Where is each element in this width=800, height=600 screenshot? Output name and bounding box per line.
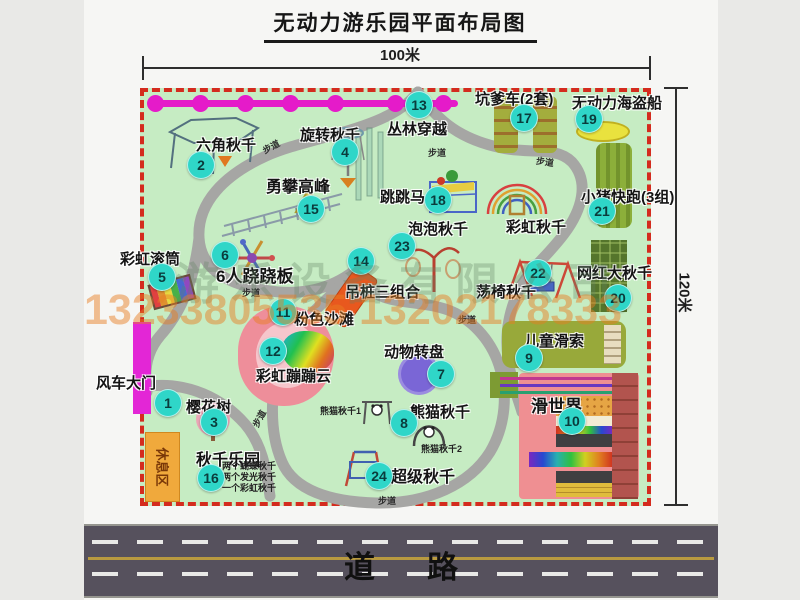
item-2-badge: 2 xyxy=(187,151,215,179)
jungle-course-dot xyxy=(192,95,209,112)
item-7-badge: 7 xyxy=(427,360,455,388)
item-5-badge: 5 xyxy=(148,263,176,291)
item-17-badge: 17 xyxy=(510,104,538,132)
dim-right-tick-top xyxy=(664,87,688,89)
item-13-label: 丛林穿越 xyxy=(387,118,447,139)
item-17-label: 坑爹车(2套) xyxy=(475,88,553,109)
jungle-course-dot xyxy=(435,95,452,112)
jungle-course-dot xyxy=(282,95,299,112)
rainbow-swing-icon xyxy=(488,185,546,214)
swing-park-note-2: 两个发光秋千 xyxy=(222,472,276,483)
item-6-badge: 6 xyxy=(211,241,239,269)
slide-band-dark xyxy=(556,471,613,483)
dim-top-tick-right xyxy=(649,56,651,80)
panda-swing-1-icon xyxy=(362,402,392,424)
item-12-badge: 12 xyxy=(259,337,287,365)
windmill-gate xyxy=(133,322,151,414)
item-11-badge: 11 xyxy=(269,298,297,326)
walkway-label: 步道 xyxy=(428,146,446,159)
rest-area-label: 休息区 xyxy=(153,447,172,486)
item-16-badge: 16 xyxy=(197,464,225,492)
page-title-text: 无动力游乐园平面布局图 xyxy=(264,7,537,43)
item-4-badge: 4 xyxy=(331,138,359,166)
swing-park-note-1: 两个蝴蝶秋千 xyxy=(222,461,276,472)
jungle-course-dot xyxy=(387,95,404,112)
item-15-badge: 15 xyxy=(297,195,325,223)
dim-right-label: 120米 xyxy=(675,258,696,328)
panda-swing-1-label: 熊猫秋千1 xyxy=(320,404,361,417)
playground-plan: 无动力游乐园平面布局图 100米 120米 xyxy=(0,0,800,600)
dim-right-tick-bottom xyxy=(664,504,688,506)
jungle-course-dot xyxy=(237,95,254,112)
jungle-course-dot xyxy=(327,95,344,112)
item-3-badge: 3 xyxy=(200,408,228,436)
rest-area: 休息区 xyxy=(145,432,180,502)
item-11-label: 粉色沙滩 xyxy=(294,308,354,329)
slide-band-yellow xyxy=(556,483,613,497)
jungle-course-dot xyxy=(147,95,164,112)
item-15-label: 勇攀高峰 xyxy=(266,173,330,197)
item-12-label: 彩虹蹦蹦云 xyxy=(256,365,331,386)
slide-band-dark xyxy=(556,434,613,447)
item-1-badge: 1 xyxy=(154,389,182,417)
rainbow-swing-label: 彩虹秋千 xyxy=(506,216,566,237)
item-10-badge: 10 xyxy=(558,407,586,435)
road: 道路 xyxy=(84,524,718,598)
walkway-label: 步道 xyxy=(378,494,396,507)
item-18-label: 跳跳马 xyxy=(380,186,425,207)
panda-swing-2-label: 熊猫秋千2 xyxy=(421,442,462,455)
item-8-label: 熊猫秋千 xyxy=(410,401,470,422)
item-20-label: 网红大秋千 xyxy=(577,262,652,283)
slide-world-tower xyxy=(612,373,638,499)
swing-park-note-3: 一个彩虹秋千 xyxy=(222,483,276,494)
item-22-label: 荡椅秋千 xyxy=(476,281,536,302)
zipline-tower xyxy=(604,325,621,364)
zipline-cable xyxy=(500,377,615,380)
dim-top-line xyxy=(143,67,651,69)
page-title: 无动力游乐园平面布局图 xyxy=(0,7,800,43)
dim-top-label: 100米 xyxy=(355,44,445,65)
item-20-badge: 20 xyxy=(604,284,632,312)
item-14-label: 吊桩三组合 xyxy=(345,281,420,302)
item-14-badge: 14 xyxy=(347,247,375,275)
walkway-label: 步道 xyxy=(242,286,260,299)
item-19-badge: 19 xyxy=(575,105,603,133)
dim-top-tick-left xyxy=(142,56,144,80)
item-24-label: 超级秋千 xyxy=(391,463,455,487)
item-23-badge: 23 xyxy=(388,232,416,260)
slide-band-rainbow-big xyxy=(529,452,613,467)
walkway-label: 步道 xyxy=(535,154,555,169)
item-24-badge: 24 xyxy=(365,462,393,490)
item-1-label: 风车大门 xyxy=(96,372,156,393)
swing-park-notes: 两个蝴蝶秋千 两个发光秋千 一个彩虹秋千 xyxy=(222,461,276,494)
item-9-badge: 9 xyxy=(515,344,543,372)
zipline-cable xyxy=(500,384,615,387)
road-label: 道路 xyxy=(84,542,718,587)
item-8-badge: 8 xyxy=(390,409,418,437)
item-18-badge: 18 xyxy=(424,186,452,214)
item-21-badge: 21 xyxy=(588,197,616,225)
item-23-label: 泡泡秋千 xyxy=(408,218,468,239)
item-22-badge: 22 xyxy=(524,259,552,287)
item-7-label: 动物转盘 xyxy=(384,341,444,362)
walkway-label: 步道 xyxy=(458,313,476,326)
item-13-badge: 13 xyxy=(405,91,433,119)
